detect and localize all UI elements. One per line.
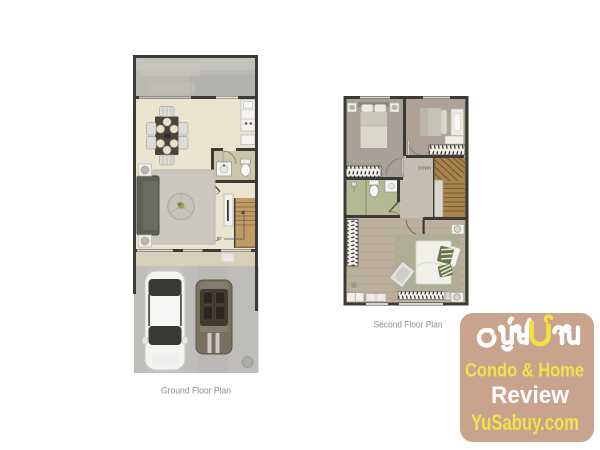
svg-text:Second Floor Plan: Second Floor Plan [374,320,443,331]
svg-text:Condo & Home: Condo & Home [465,360,584,382]
svg-text:Review: Review [491,382,570,409]
svg-text:Ground Floor Plan: Ground Floor Plan [161,386,231,397]
svg-text:DOWN: DOWN [418,166,431,171]
svg-text:YuSabuy.com: YuSabuy.com [471,410,579,435]
